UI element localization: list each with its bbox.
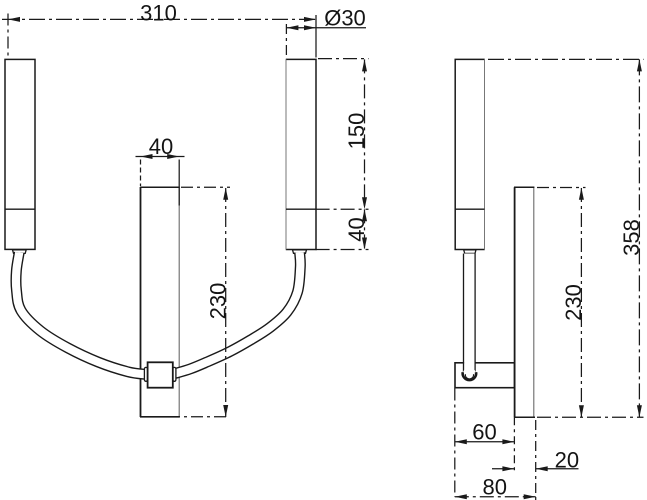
svg-text:150: 150 <box>344 113 369 150</box>
svg-text:40: 40 <box>149 134 173 159</box>
svg-text:20: 20 <box>555 448 579 473</box>
svg-text:230: 230 <box>561 284 586 321</box>
svg-text:310: 310 <box>140 1 177 26</box>
svg-text:230: 230 <box>206 283 231 320</box>
svg-text:80: 80 <box>482 475 506 500</box>
svg-text:358: 358 <box>619 219 644 256</box>
svg-text:60: 60 <box>472 420 496 445</box>
svg-text:40: 40 <box>344 217 369 241</box>
svg-text:Ø30: Ø30 <box>324 6 366 31</box>
